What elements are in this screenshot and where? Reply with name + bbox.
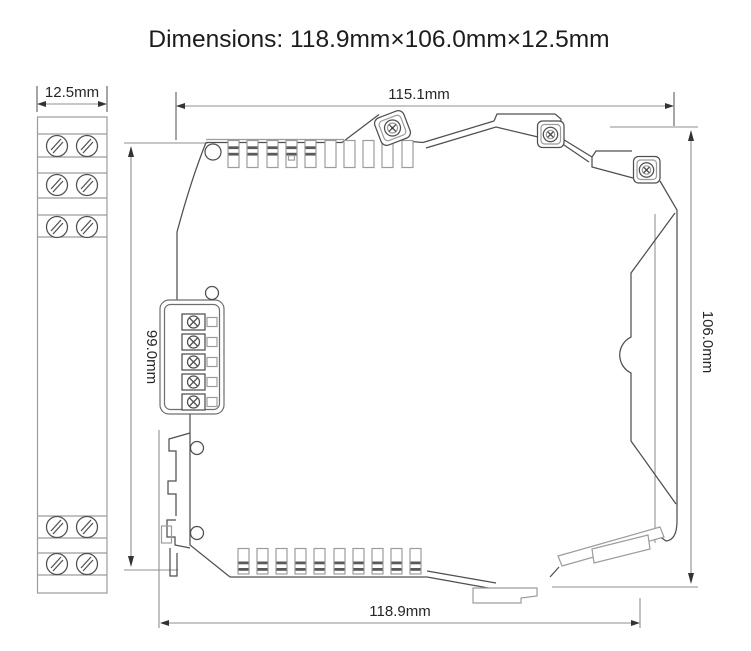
screw-icon [47,217,68,238]
body-height-dim-label: 99.0mm [143,330,160,384]
dimension-bottom-width: 118.9mm [159,430,640,628]
din-rail-clip [162,433,191,576]
screw-icon [77,554,98,575]
top-width-dim-label: 115.1mm [388,86,449,103]
dimension-drawing: Dimensions: 118.9mm×106.0mm×12.5mm 12.5m… [0,0,751,651]
bottom-width-dim-label: 118.9mm [369,603,430,620]
top-right-terminal-1 [538,121,565,148]
overall-height-dim-label: 106.0mm [699,311,716,374]
screw-icon [77,175,98,196]
front-width-dim-label: 12.5mm [45,84,99,101]
screw-icon [77,517,98,538]
technical-drawing-page: Dimensions: 118.9mm×106.0mm×12.5mm 12.5m… [0,0,751,651]
module-outline [177,114,677,577]
screw-icon [47,517,68,538]
dimension-overall-height: 106.0mm [552,127,716,587]
screw-icon [77,217,98,238]
dimension-front-width: 12.5mm [37,84,107,112]
screw-icon [47,136,68,157]
bottom-right-foot [427,527,664,603]
screw-icon [47,175,68,196]
screw-icon [47,554,68,575]
connector-block [160,300,224,414]
vent-slots-bottom [238,549,421,575]
dimension-top-width: 115.1mm [176,86,674,140]
front-view [38,117,108,593]
page-title: Dimensions: 118.9mm×106.0mm×12.5mm [148,26,609,53]
side-view [160,109,677,603]
screw-icon [77,136,98,157]
top-right-terminal-2 [634,157,661,184]
